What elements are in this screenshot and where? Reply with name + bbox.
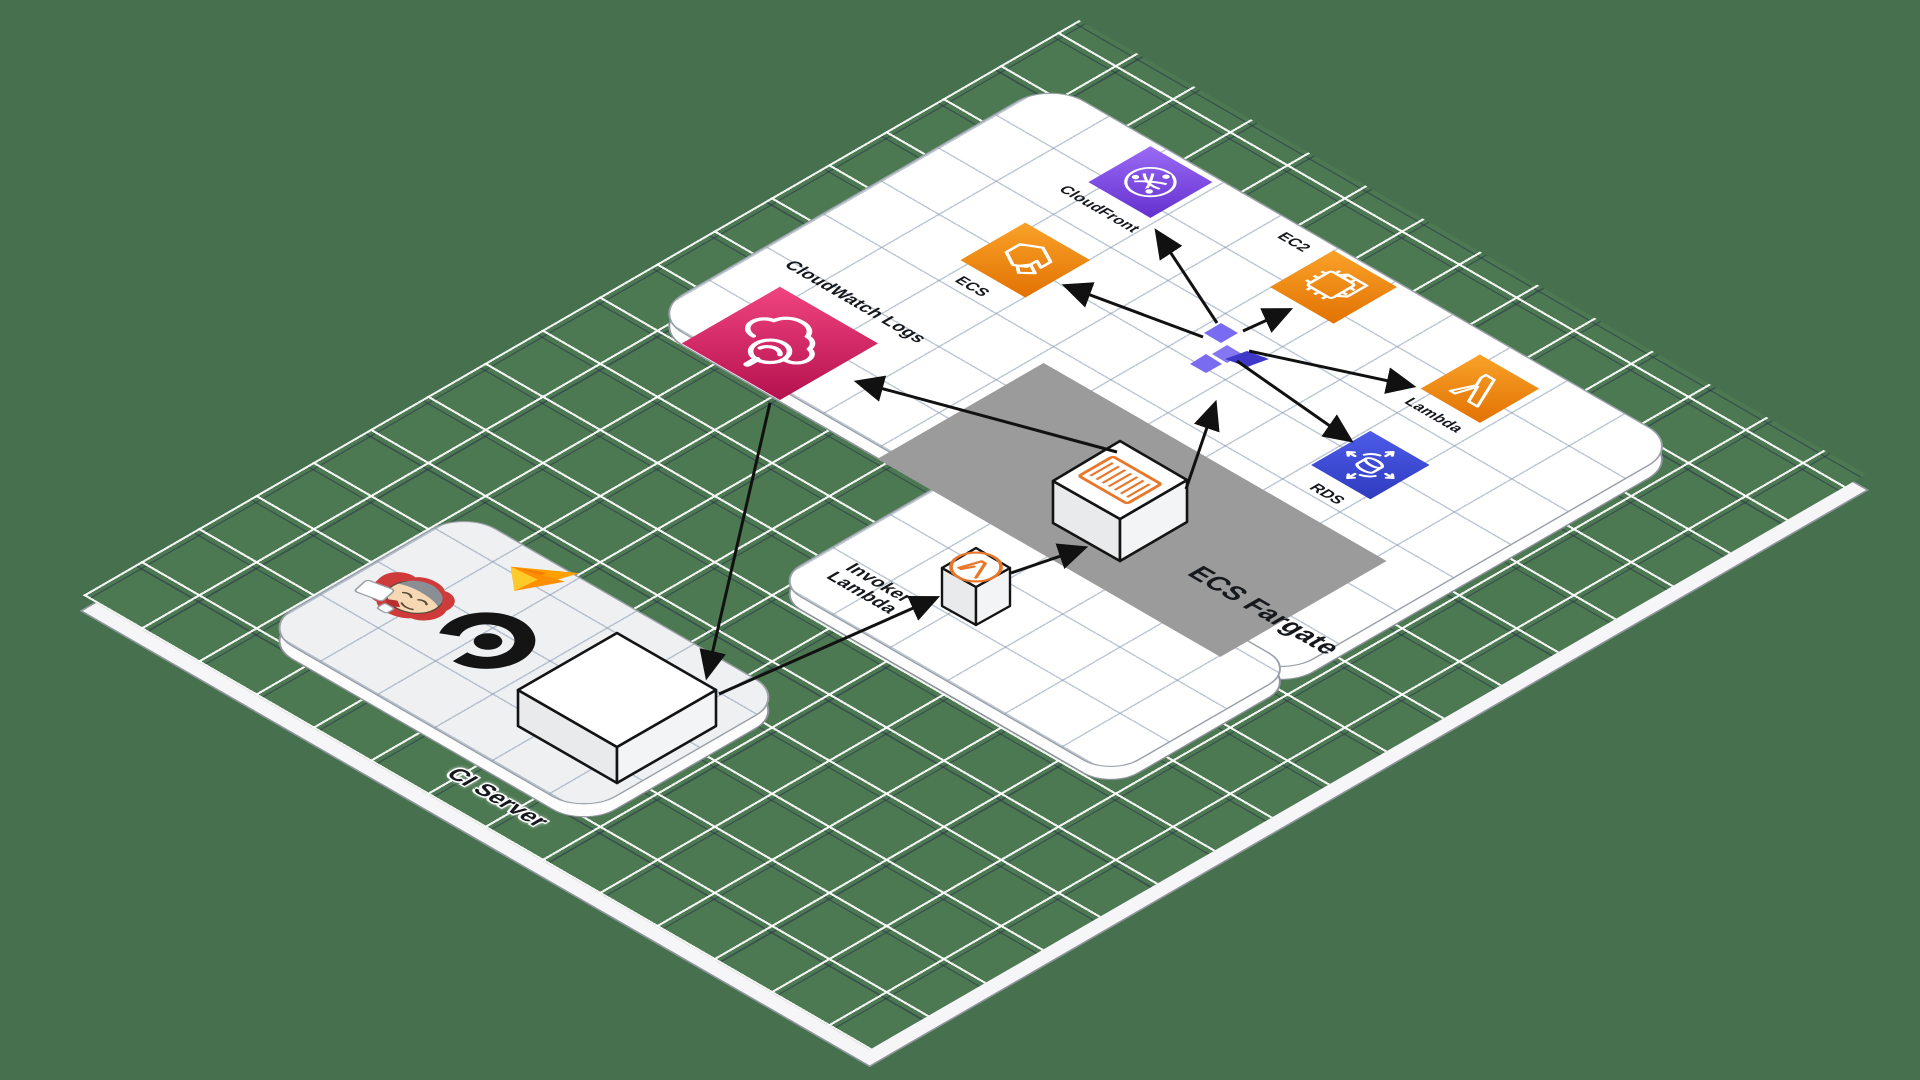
isometric-aws-architecture-diagram: CloudWatch Logs CloudFront ECS EC2 Lambd… [0, 0, 1920, 1080]
content-layer: CloudWatch Logs CloudFront ECS EC2 Lambd… [83, 20, 1866, 1050]
